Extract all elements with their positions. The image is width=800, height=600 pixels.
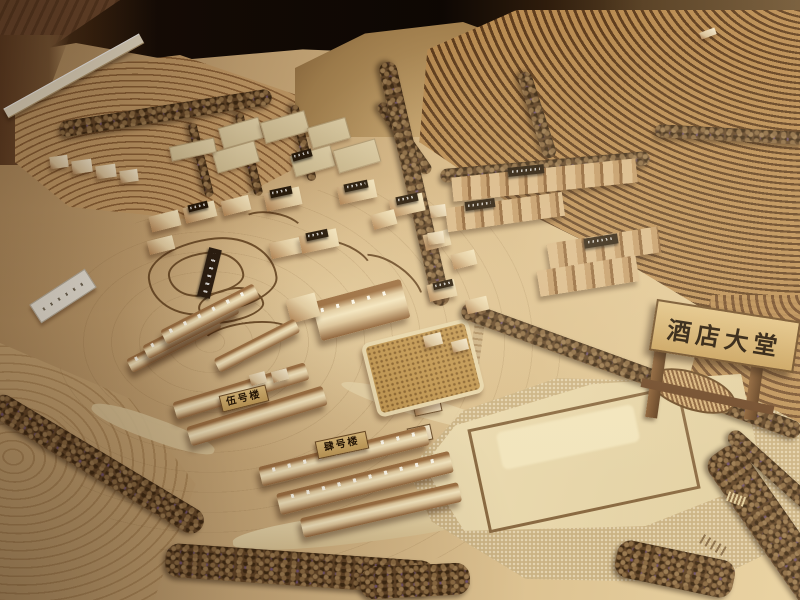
building-4-label: 肆号楼 <box>323 436 360 453</box>
cottage-1 <box>49 155 68 169</box>
model-photo: 伍号楼 肆号楼 酒店大堂 <box>0 0 800 600</box>
cottage-4 <box>119 169 138 183</box>
cottage-5 <box>429 204 447 218</box>
cottage-3 <box>95 164 117 180</box>
field-slab-6 <box>333 138 382 173</box>
tree-clump-bottom-center <box>359 562 471 600</box>
hotel-lobby-label: 酒店大堂 <box>665 310 785 363</box>
cottage-6 <box>427 231 445 245</box>
cottage-2 <box>71 159 93 175</box>
